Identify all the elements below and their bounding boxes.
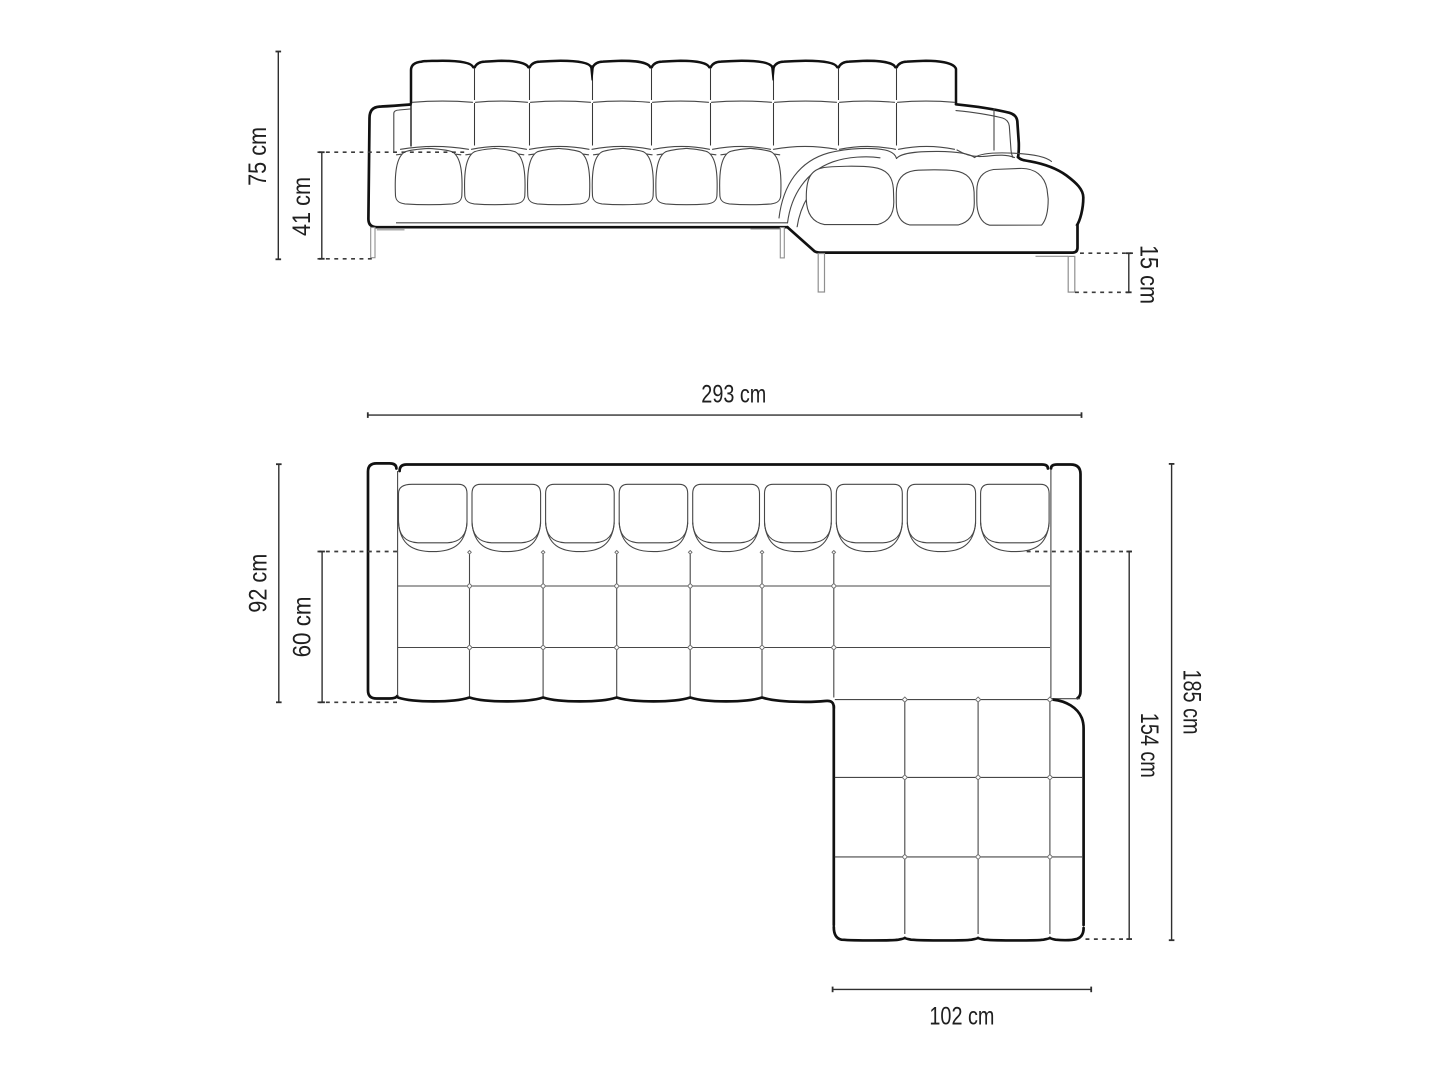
svg-text:92 cm: 92 cm [244,554,272,613]
svg-text:154 cm: 154 cm [1135,713,1163,778]
svg-text:185 cm: 185 cm [1177,670,1205,735]
svg-text:15 cm: 15 cm [1135,245,1163,304]
svg-text:41 cm: 41 cm [288,177,316,236]
svg-text:293 cm: 293 cm [701,381,766,409]
svg-text:102 cm: 102 cm [929,1002,994,1030]
svg-text:75 cm: 75 cm [244,127,272,186]
svg-text:60 cm: 60 cm [288,596,316,657]
